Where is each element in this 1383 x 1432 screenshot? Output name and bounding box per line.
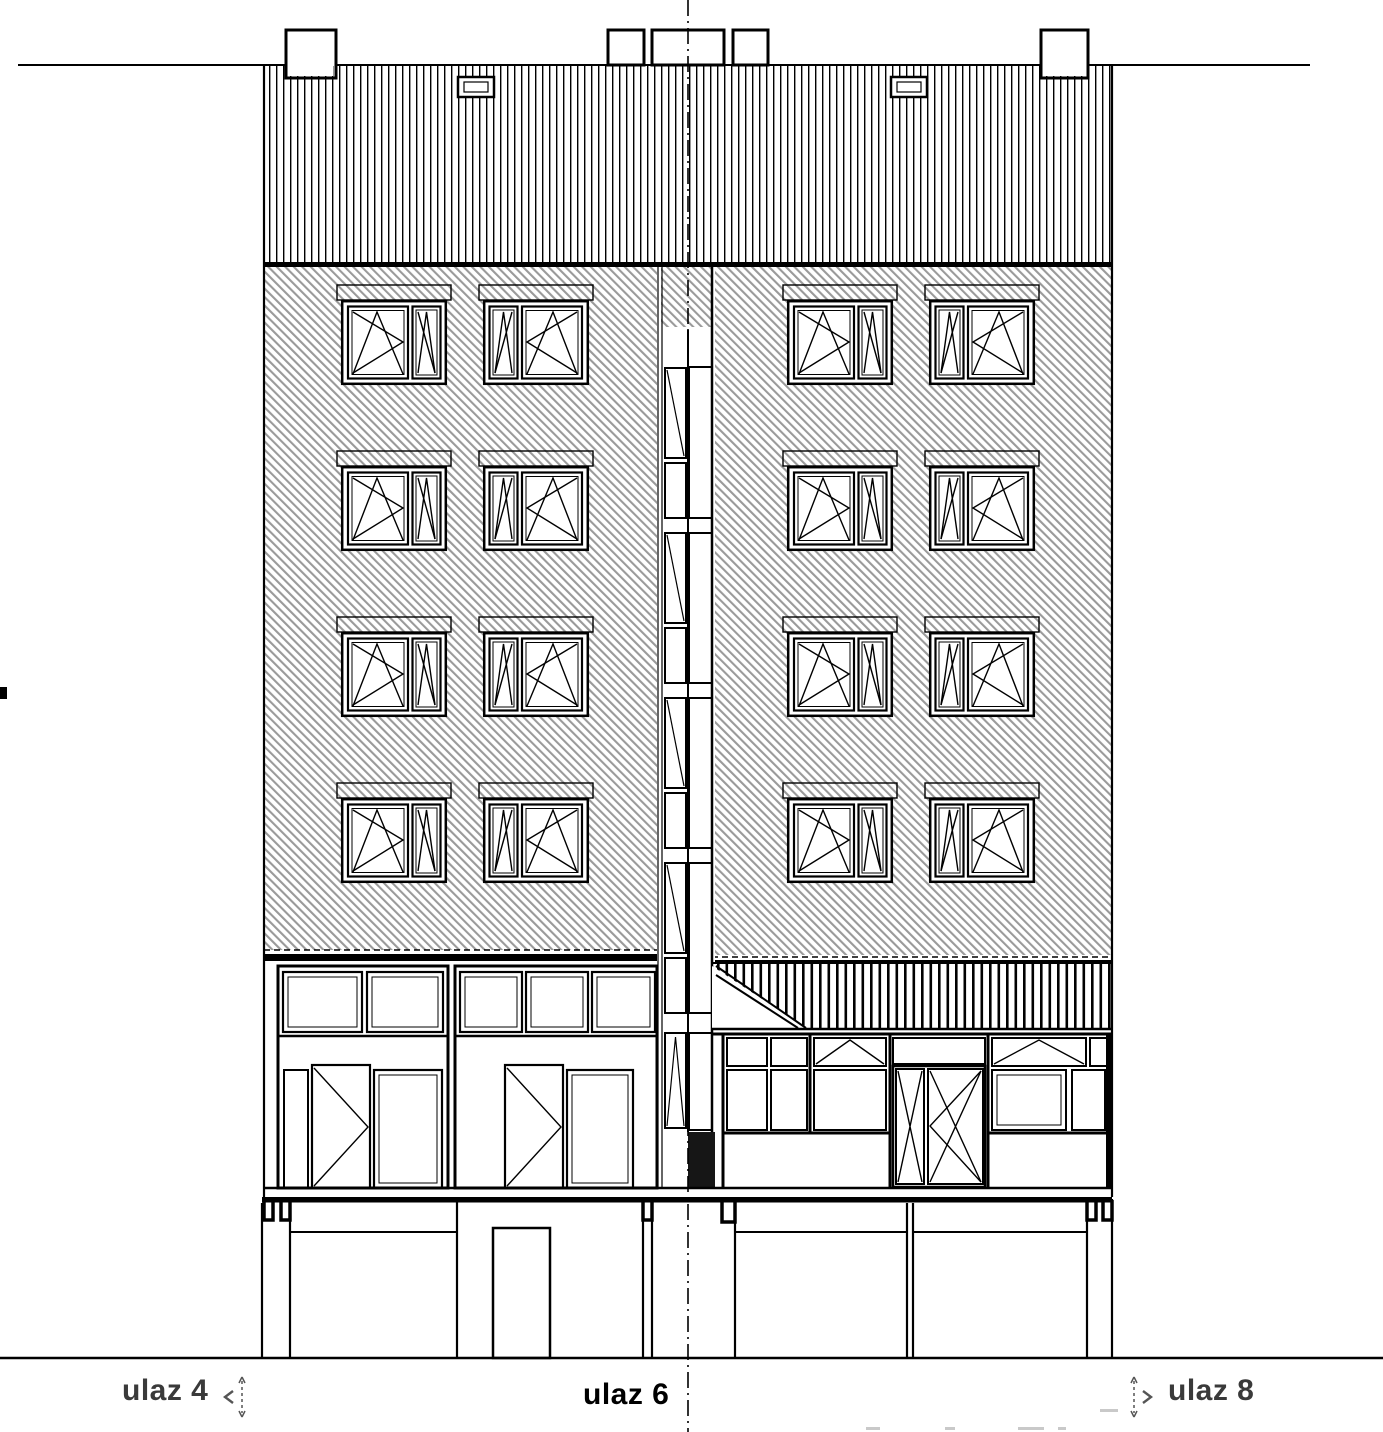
window	[930, 467, 1034, 550]
window	[788, 799, 892, 882]
window	[484, 467, 588, 550]
storefront-left	[278, 966, 657, 1188]
cut-off-text-fragments	[866, 1409, 1118, 1430]
stairwell-strip	[657, 267, 715, 1188]
building-elevation-drawing	[0, 0, 1383, 1432]
roof-vent	[458, 77, 494, 97]
window	[342, 301, 446, 384]
window	[342, 467, 446, 550]
window	[788, 467, 892, 550]
label-entrance-8: ulaz 8	[1168, 1374, 1254, 1408]
entrance-dark-panel	[688, 1132, 715, 1188]
window	[484, 799, 588, 882]
window	[788, 633, 892, 716]
section-reference-arrow-right	[1126, 1374, 1154, 1420]
entrance-door-double	[893, 1066, 985, 1187]
base-storey	[262, 1197, 1112, 1358]
window	[484, 633, 588, 716]
facade-wall-right	[712, 267, 1112, 961]
section-reference-arrow-left	[222, 1374, 250, 1420]
window	[342, 633, 446, 716]
label-entrance-4: ulaz 4	[122, 1374, 208, 1408]
elevation-sheet: ulaz 4 ulaz 6 ulaz 8	[0, 0, 1383, 1432]
window	[930, 799, 1034, 882]
roof-vent	[891, 77, 927, 97]
transom-windows	[283, 972, 655, 1032]
window	[930, 301, 1034, 384]
basement-door	[493, 1228, 550, 1358]
label-entrance-6: ulaz 6	[583, 1378, 669, 1412]
storefront-right	[712, 1034, 1112, 1188]
entrance-doors	[284, 1065, 633, 1188]
transom-windows	[727, 1038, 1107, 1066]
canopy-right	[712, 963, 1112, 1029]
window	[342, 799, 446, 882]
window	[930, 633, 1034, 716]
window	[484, 301, 588, 384]
facade-wall-left	[264, 267, 657, 961]
window	[788, 301, 892, 384]
edge-mark	[0, 687, 7, 699]
